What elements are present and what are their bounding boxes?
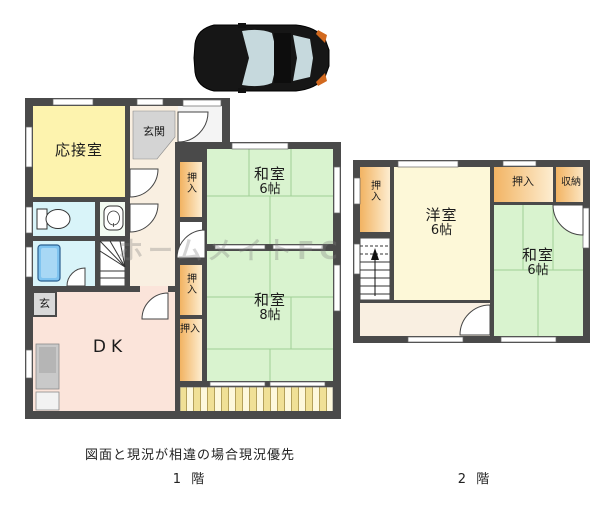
closet-2 <box>180 265 202 315</box>
closet-2f-top <box>493 167 553 202</box>
car-icon <box>192 22 332 94</box>
closet-3 <box>180 319 202 381</box>
floorplan-page: 応接室 玄関 押入 押入 押入 和室 6帖 和室 8帖 DK 玄 <box>0 0 600 508</box>
floor1-caption: 1 階 <box>80 468 300 487</box>
toilet-icon <box>37 209 70 229</box>
disclaimer-text: 図面と現況が相違の場合現況優先 <box>55 444 325 463</box>
bathtub-icon <box>38 245 60 281</box>
watermark-text: ホームメイトFC <box>118 231 428 267</box>
room-reception <box>33 106 125 197</box>
storage-2f <box>556 167 587 202</box>
car-mirror-top <box>238 23 246 28</box>
kitchen-counter <box>36 344 59 410</box>
closet-1 <box>180 162 202 217</box>
door-gap <box>140 286 168 292</box>
car-roof <box>274 33 291 83</box>
floor2-caption: 2 階 <box>395 468 555 487</box>
veranda <box>180 387 333 412</box>
car-top-view <box>192 22 332 98</box>
closet-2f-left <box>360 167 390 232</box>
side-entrance-box <box>33 292 56 316</box>
sink-icon <box>104 206 123 230</box>
car-mirror-bottom <box>238 88 246 93</box>
